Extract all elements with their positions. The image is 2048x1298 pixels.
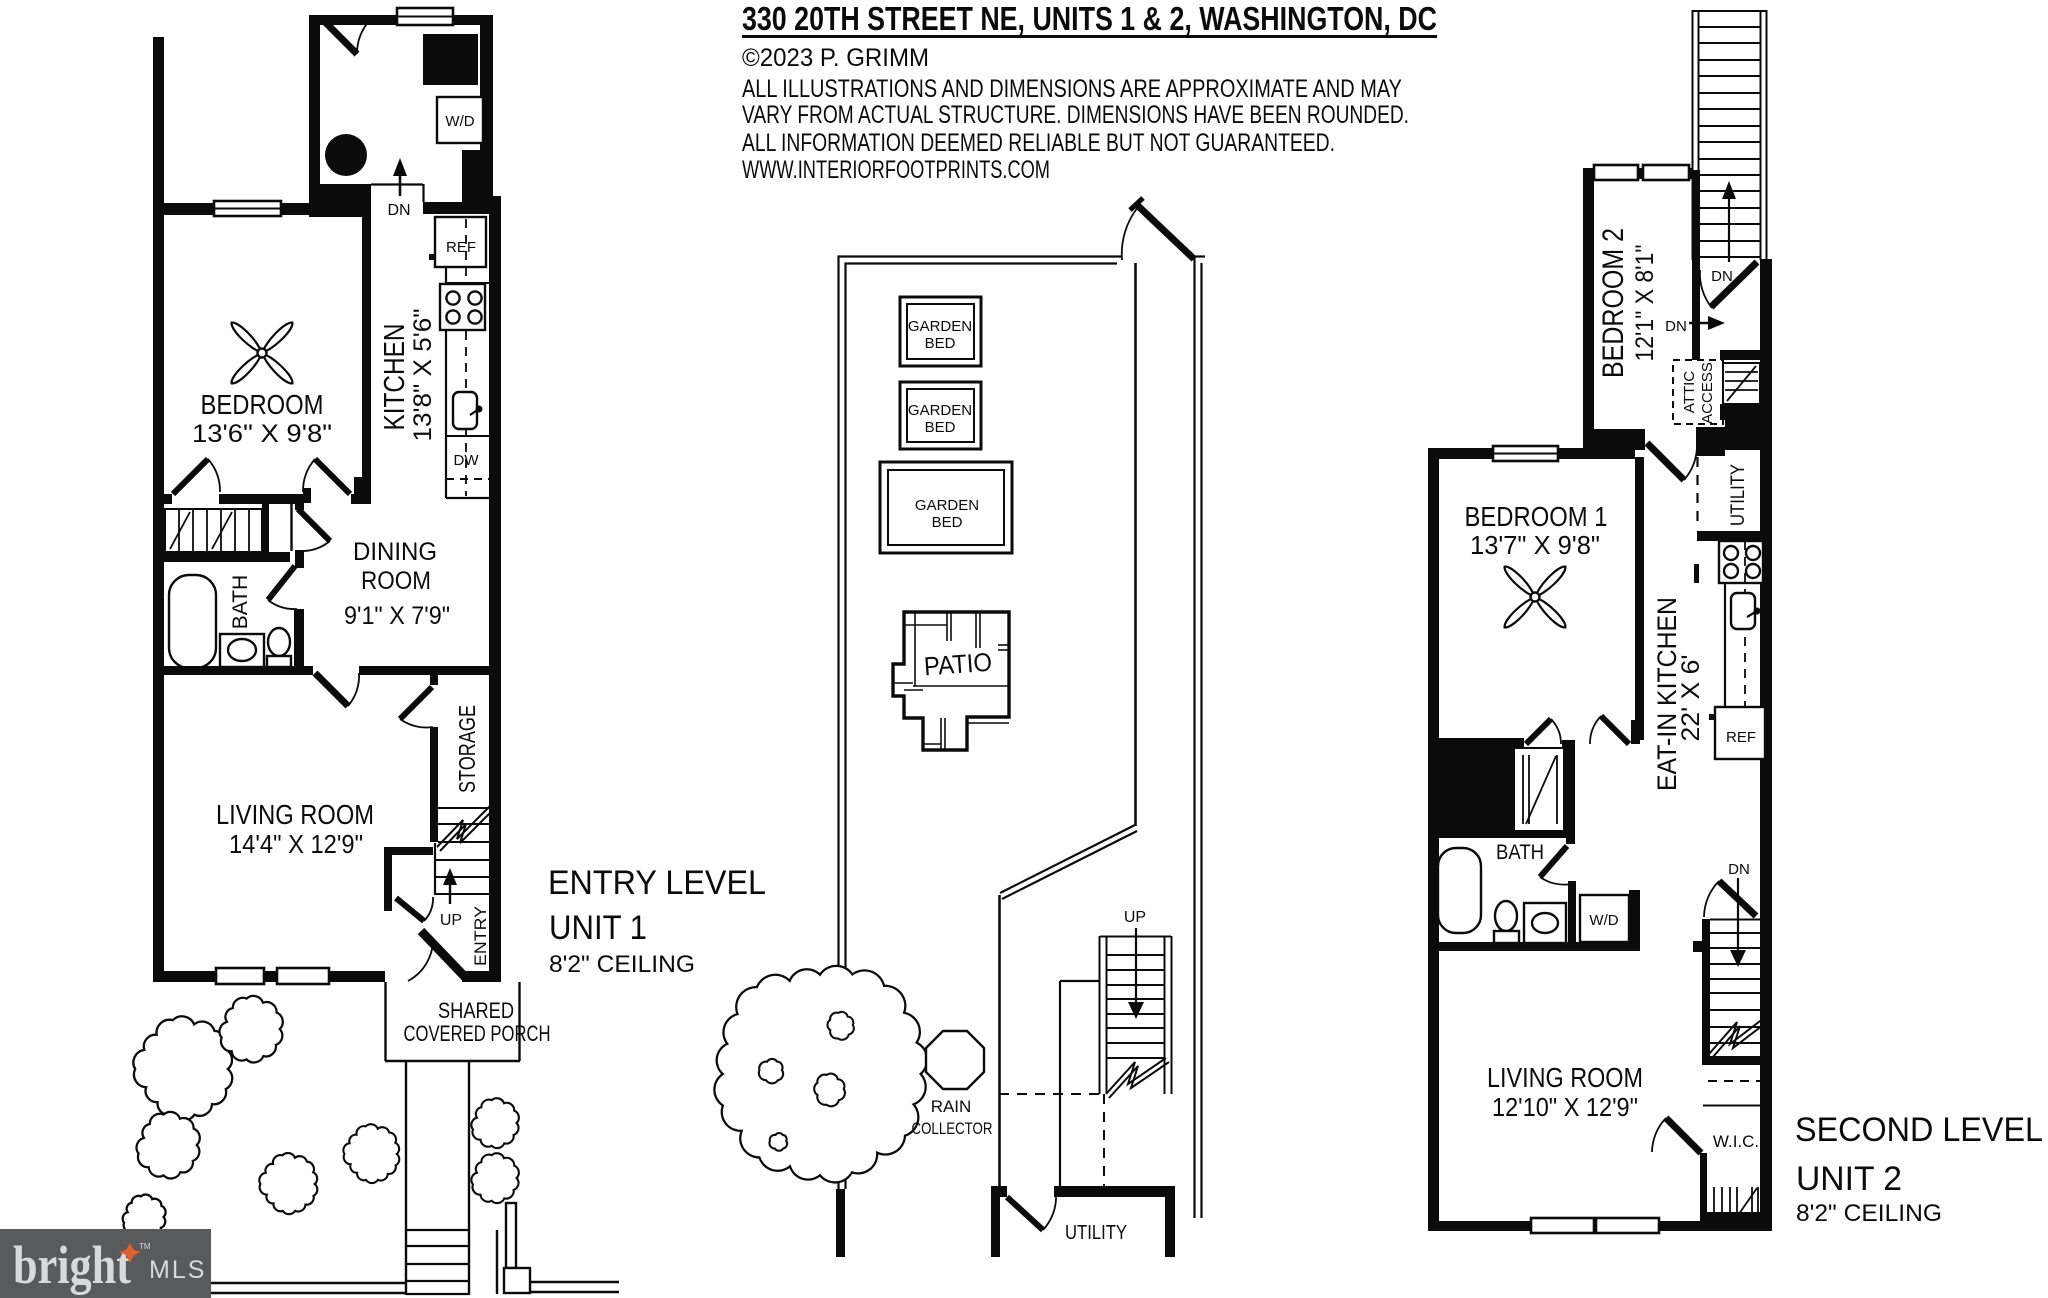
svg-text:GARDEN: GARDEN <box>908 402 972 419</box>
svg-text:BATH: BATH <box>229 575 252 629</box>
svg-text:ALL ILLUSTRATIONS AND DIMENSIO: ALL ILLUSTRATIONS AND DIMENSIONS ARE APP… <box>742 75 1402 103</box>
svg-text:TM: TM <box>139 1242 151 1251</box>
svg-text:STORAGE: STORAGE <box>454 705 480 793</box>
svg-text:DW: DW <box>454 452 480 469</box>
svg-text:14'4" X 12'9": 14'4" X 12'9" <box>229 829 363 859</box>
svg-text:GARDEN: GARDEN <box>915 497 979 514</box>
svg-text:ACCESS: ACCESS <box>1699 362 1716 424</box>
svg-text:SECOND LEVEL: SECOND LEVEL <box>1795 1111 2043 1149</box>
svg-text:UP: UP <box>440 912 462 929</box>
svg-text:W/D: W/D <box>1589 912 1618 929</box>
svg-text:UTILITY: UTILITY <box>1728 464 1749 526</box>
svg-text:12'1" X 8'1": 12'1" X 8'1" <box>1631 245 1659 362</box>
svg-text:UNIT 2: UNIT 2 <box>1796 1160 1902 1198</box>
svg-text:ROOM: ROOM <box>361 567 431 595</box>
svg-text:bright: bright <box>13 1235 131 1295</box>
svg-text:WWW.INTERIORFOOTPRINTS.COM: WWW.INTERIORFOOTPRINTS.COM <box>742 156 1050 184</box>
svg-text:BEDROOM 1: BEDROOM 1 <box>1465 501 1608 532</box>
svg-text:KITCHEN: KITCHEN <box>379 324 411 431</box>
svg-text:DN: DN <box>1711 268 1733 285</box>
svg-text:13'6" X 9'8": 13'6" X 9'8" <box>192 420 332 448</box>
svg-text:22' X 6': 22' X 6' <box>1677 655 1705 742</box>
svg-text:330 20TH STREET NE, UNITS 1 &: 330 20TH STREET NE, UNITS 1 & 2, WASHING… <box>742 0 1437 37</box>
svg-text:BEDROOM 2: BEDROOM 2 <box>1597 228 1630 378</box>
svg-text:13'8" X 5'6": 13'8" X 5'6" <box>409 309 437 442</box>
svg-text:REF: REF <box>1726 729 1756 746</box>
svg-text:COLLECTOR: COLLECTOR <box>912 1119 993 1138</box>
svg-text:BEDROOM: BEDROOM <box>201 389 324 420</box>
svg-text:8'2" CEILING: 8'2" CEILING <box>549 951 695 978</box>
svg-text:DN: DN <box>1665 318 1687 335</box>
svg-text:UP: UP <box>1124 909 1146 926</box>
svg-text:W.I.C.: W.I.C. <box>1713 1132 1759 1151</box>
svg-text:BED: BED <box>932 514 963 531</box>
svg-text:DN: DN <box>1728 861 1750 878</box>
svg-text:8'2" CEILING: 8'2" CEILING <box>1796 1200 1942 1227</box>
svg-text:ENTRY: ENTRY <box>471 906 490 966</box>
svg-text:REF: REF <box>446 239 476 256</box>
svg-text:UNIT 1: UNIT 1 <box>549 909 647 947</box>
svg-text:RAIN: RAIN <box>931 1097 972 1116</box>
svg-text:12'10" X 12'9": 12'10" X 12'9" <box>1492 1092 1638 1122</box>
svg-text:ENTRY LEVEL: ENTRY LEVEL <box>548 864 766 902</box>
svg-text:VARY FROM ACTUAL STRUCTURE. DI: VARY FROM ACTUAL STRUCTURE. DIMENSIONS H… <box>742 101 1409 129</box>
svg-text:SHARED: SHARED <box>438 998 514 1023</box>
svg-text:COVERED PORCH: COVERED PORCH <box>404 1021 551 1046</box>
svg-text:13'7" X 9'8": 13'7" X 9'8" <box>1470 530 1600 560</box>
svg-text:LIVING ROOM: LIVING ROOM <box>1487 1062 1643 1093</box>
svg-text:BED: BED <box>925 419 956 436</box>
svg-text:DN: DN <box>387 202 410 219</box>
svg-text:©2023 P. GRIMM: ©2023 P. GRIMM <box>742 44 929 72</box>
svg-text:MLS: MLS <box>149 1256 206 1284</box>
svg-text:ALL INFORMATION DEEMED RELIABL: ALL INFORMATION DEEMED RELIABLE BUT NOT … <box>742 129 1335 157</box>
svg-text:BATH: BATH <box>1496 841 1544 864</box>
svg-text:BED: BED <box>925 335 956 352</box>
svg-text:PATIO: PATIO <box>923 647 993 682</box>
svg-text:ATTIC: ATTIC <box>1681 371 1698 413</box>
svg-text:LIVING ROOM: LIVING ROOM <box>216 799 374 830</box>
svg-text:DINING: DINING <box>353 538 437 566</box>
svg-text:W/D: W/D <box>445 113 474 130</box>
svg-text:GARDEN: GARDEN <box>908 318 972 335</box>
svg-text:UTILITY: UTILITY <box>1065 1222 1127 1244</box>
svg-text:9'1" X 7'9": 9'1" X 7'9" <box>344 602 450 630</box>
